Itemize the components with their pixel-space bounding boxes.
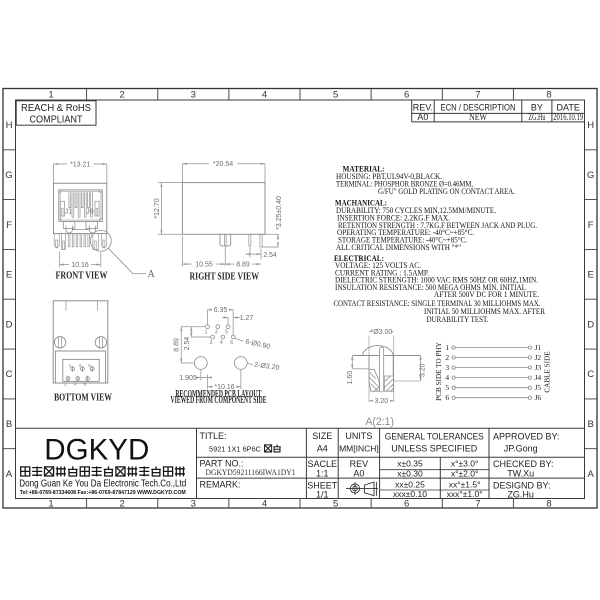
svg-text:3: 3 — [191, 90, 196, 101]
svg-text:DGKYD59211166IWA1DY1: DGKYD59211166IWA1DY1 — [206, 467, 296, 477]
svg-text:*20.54: *20.54 — [213, 161, 233, 168]
svg-text:CABLE SIDE: CABLE SIDE — [544, 351, 552, 393]
svg-text:1:1: 1:1 — [316, 469, 329, 479]
svg-text:1.27: 1.27 — [240, 315, 254, 322]
svg-text:REACH & RoHS: REACH & RoHS — [21, 103, 91, 114]
svg-text:PCB SIDE TO PHY: PCB SIDE TO PHY — [435, 341, 443, 400]
svg-text:1: 1 — [48, 499, 53, 510]
svg-text:A0: A0 — [353, 469, 364, 479]
svg-text:A0: A0 — [417, 112, 428, 122]
svg-text:2016.10.19: 2016.10.19 — [553, 112, 583, 122]
svg-text:COMPLIANT: COMPLIANT — [30, 115, 83, 126]
svg-text:xx±0.25: xx±0.25 — [395, 480, 425, 490]
svg-text:FRONT VIEW: FRONT VIEW — [56, 270, 108, 281]
svg-text:F: F — [6, 220, 12, 231]
svg-text:4: 4 — [220, 340, 223, 346]
svg-text:3: 3 — [215, 330, 218, 336]
svg-text:1: 1 — [445, 343, 449, 352]
svg-text:4: 4 — [262, 499, 267, 510]
svg-text:7: 7 — [475, 90, 480, 101]
svg-text:xxx±0.10: xxx±0.10 — [393, 489, 427, 499]
svg-text:UNLESS SPECIFIED: UNLESS SPECIFIED — [391, 444, 478, 454]
svg-text:6: 6 — [230, 340, 233, 346]
svg-text:8: 8 — [546, 499, 551, 510]
svg-text:D: D — [587, 319, 594, 330]
svg-text:B: B — [6, 419, 12, 430]
svg-text:CHECKED BY:: CHECKED BY: — [493, 459, 554, 469]
svg-text:J1: J1 — [535, 343, 542, 352]
svg-text:ZG.Hu: ZG.Hu — [507, 490, 534, 500]
svg-text:C: C — [587, 369, 594, 380]
svg-text:ALL CRITICAL DIMENSIONS WITH ": ALL CRITICAL DIMENSIONS WITH "*" — [336, 243, 461, 252]
svg-text:A(2:1): A(2:1) — [365, 416, 394, 428]
svg-text:6: 6 — [445, 393, 449, 402]
svg-text:G/FU" GOLD PLATING ON CONTACT: G/FU" GOLD PLATING ON CONTACT AREA. — [378, 187, 515, 196]
svg-text:GENERAL TOLERANCES: GENERAL TOLERANCES — [385, 432, 484, 442]
svg-text:D: D — [6, 319, 13, 330]
svg-text:APPROVED BY:: APPROVED BY: — [493, 432, 560, 442]
svg-text:x±0.35: x±0.35 — [397, 459, 423, 469]
svg-text:RIGHT SIDE VIEW: RIGHT SIDE VIEW — [190, 271, 260, 282]
svg-text:E: E — [6, 270, 12, 281]
svg-text:J1: J1 — [65, 208, 73, 215]
svg-text:1.60: 1.60 — [347, 371, 354, 385]
svg-text:J3: J3 — [535, 363, 542, 372]
svg-text:3.20: 3.20 — [375, 398, 389, 405]
svg-text:*3.25±0.40: *3.25±0.40 — [276, 196, 283, 230]
svg-text:6.35: 6.35 — [214, 307, 228, 314]
svg-text:A: A — [148, 269, 156, 280]
svg-text:xxx°±1.0°: xxx°±1.0° — [447, 489, 483, 499]
svg-text:5921 1X1 6P6C: 5921 1X1 6P6C — [209, 445, 262, 454]
svg-text:x±0.30: x±0.30 — [397, 469, 423, 479]
svg-text:REMARK:: REMARK: — [200, 480, 241, 490]
svg-text:3: 3 — [191, 499, 196, 510]
svg-text:8: 8 — [546, 90, 551, 101]
svg-text:8.89: 8.89 — [236, 262, 250, 269]
svg-text:E: E — [588, 270, 594, 281]
svg-text:BOTTOM VIEW: BOTTOM VIEW — [54, 392, 112, 403]
svg-text:J5: J5 — [535, 383, 542, 392]
svg-text:4: 4 — [262, 90, 267, 101]
svg-text:10.55: 10.55 — [195, 262, 213, 269]
svg-text:A4: A4 — [317, 444, 328, 454]
svg-text:Dong Guan Ke You Da Electronic: Dong Guan Ke You Da Electronic Tech.Co.,… — [19, 478, 186, 489]
svg-text:xx°±1.5°: xx°±1.5° — [449, 480, 481, 490]
svg-text:6: 6 — [404, 499, 409, 510]
svg-text:Tel:+86-0769-87334608 Fax:+86: Tel:+86-0769-87334608 Fax:+86-0769-87847… — [20, 490, 186, 496]
svg-text:VIEWED FROM COMPONENT SIDE: VIEWED FROM COMPONENT SIDE — [171, 395, 267, 406]
svg-text:J6: J6 — [86, 208, 94, 215]
svg-text:1: 1 — [48, 90, 53, 101]
svg-text:H: H — [587, 120, 594, 131]
svg-text:2: 2 — [210, 340, 213, 346]
svg-text:J6: J6 — [535, 393, 542, 402]
svg-text:1.905: 1.905 — [179, 375, 197, 382]
svg-text:AFTER 500V DC FOR 1 MINUTE.: AFTER 500V DC FOR 1 MINUTE. — [434, 290, 539, 299]
svg-text:x°±3.0°: x°±3.0° — [451, 459, 479, 469]
svg-text:REV: REV — [350, 459, 369, 469]
svg-text:G: G — [5, 170, 12, 181]
svg-text:3: 3 — [445, 363, 449, 372]
svg-text:2.54: 2.54 — [184, 337, 191, 351]
svg-text:UNITS: UNITS — [345, 431, 372, 441]
svg-text:7: 7 — [475, 499, 480, 510]
svg-text:5: 5 — [225, 330, 228, 336]
svg-text:2: 2 — [120, 90, 125, 101]
svg-text:*Ø3.00: *Ø3.00 — [371, 329, 393, 336]
svg-text:10.16: 10.16 — [71, 262, 89, 269]
svg-text:DURABILITY TEST.: DURABILITY TEST. — [427, 315, 489, 324]
svg-text:TW.Xu: TW.Xu — [507, 469, 534, 479]
svg-text:A: A — [6, 469, 13, 480]
svg-text:1: 1 — [205, 330, 208, 336]
svg-text:5: 5 — [445, 383, 449, 392]
svg-text:A: A — [588, 469, 595, 480]
svg-text:TITLE:: TITLE: — [200, 431, 227, 441]
svg-text:4: 4 — [445, 373, 449, 382]
svg-text:SACLE: SACLE — [308, 459, 338, 469]
svg-text:5: 5 — [333, 499, 338, 510]
svg-text:*13.21: *13.21 — [70, 162, 90, 169]
svg-text:6: 6 — [404, 90, 409, 101]
svg-text:*12.70: *12.70 — [154, 198, 161, 218]
svg-text:J2: J2 — [535, 353, 542, 362]
svg-text:x°±2.0°: x°±2.0° — [451, 469, 479, 479]
svg-text:2: 2 — [120, 499, 125, 510]
svg-text:J4: J4 — [535, 373, 542, 382]
svg-text:G: G — [587, 170, 594, 181]
svg-text:C: C — [6, 369, 13, 380]
svg-text:2.54: 2.54 — [263, 252, 277, 259]
svg-text:2: 2 — [445, 353, 449, 362]
svg-text:DGKYD: DGKYD — [44, 434, 149, 467]
svg-text:NEW: NEW — [469, 112, 487, 122]
svg-text:8.89: 8.89 — [174, 338, 181, 352]
svg-text:ZG.Hu: ZG.Hu — [528, 112, 545, 122]
svg-text:1/1: 1/1 — [316, 490, 329, 500]
svg-text:MM[INCH]: MM[INCH] — [339, 444, 379, 454]
svg-text:JP.Gong: JP.Gong — [504, 444, 538, 454]
svg-text:5: 5 — [333, 90, 338, 101]
svg-text:F: F — [588, 220, 594, 231]
svg-text:SIZE: SIZE — [312, 431, 332, 441]
svg-text:H: H — [6, 120, 13, 131]
svg-text:3.20: 3.20 — [419, 363, 426, 377]
svg-text:B: B — [588, 419, 594, 430]
